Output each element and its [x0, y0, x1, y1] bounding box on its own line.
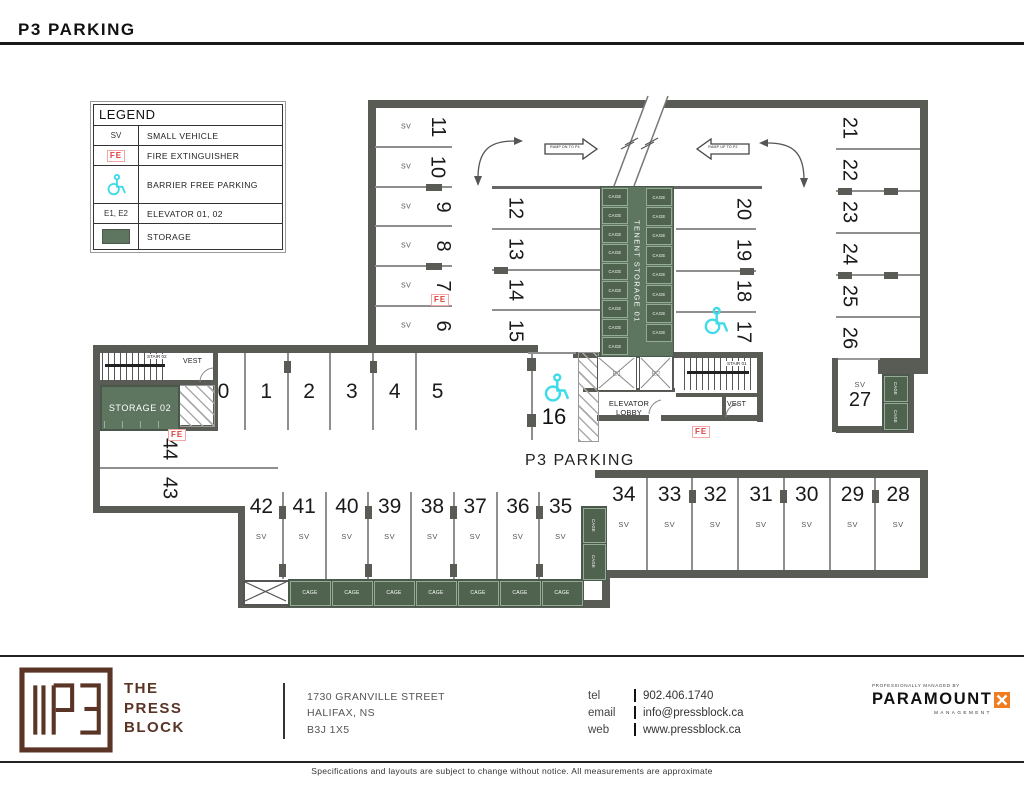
parking-stall: 23 — [836, 192, 920, 234]
storage-cage: CAGE — [290, 581, 331, 606]
wall — [920, 470, 928, 578]
legend-row-elevator: E1, E2 ELEVATOR 01, 02 — [94, 204, 282, 224]
stall-number: 28 — [886, 483, 909, 507]
vestibule-label: VEST — [727, 401, 746, 408]
website-url[interactable]: www.pressblock.ca — [643, 724, 741, 736]
vestibule-label: VEST — [183, 358, 202, 365]
ramp-down-arrow — [545, 139, 597, 159]
sv-label: SV — [664, 520, 675, 529]
sv-label: SV — [256, 532, 267, 541]
stall-number-16: 16 — [534, 404, 574, 430]
storage-cage: CAGE — [602, 244, 628, 262]
address-block: 1730 GRANVILLE STREET HALIFAX, NS B3J 1X… — [307, 689, 445, 738]
stall-number: 14 — [504, 279, 527, 301]
press-block-logo — [18, 667, 114, 753]
stall-column-6-11: SV 11 SV 10 SV 9 SV 8 SV 7 SV 6 — [375, 108, 452, 345]
parking-stall: 4 — [374, 353, 417, 430]
stall-number: 37 — [463, 495, 486, 519]
parking-stall: 43 — [100, 469, 278, 506]
footer-divider — [283, 683, 285, 739]
stall-number: 3 — [346, 380, 358, 404]
cage-row-bottom: CAGECAGECAGECAGECAGECAGECAGE — [288, 579, 584, 607]
legend-title: LEGEND — [94, 105, 282, 126]
stall-number: 21 — [838, 117, 861, 139]
sv-symbol: SV — [94, 126, 139, 145]
sv-label: SV — [401, 243, 411, 250]
parking-stall: 2 — [289, 353, 332, 430]
sv-label: SV — [401, 123, 411, 130]
sv-label: SV — [401, 163, 411, 170]
stall-number: 11 — [426, 117, 449, 138]
parking-stall: 25 — [836, 276, 920, 318]
cage-pair-right: CAGECAGE — [882, 374, 909, 431]
parking-stall: 15 — [492, 311, 600, 350]
stall-number: 35 — [549, 495, 572, 519]
parking-stall: 5 — [417, 353, 458, 430]
contact-row-web: web www.pressblock.ca — [588, 721, 744, 738]
fe-symbol-cell: FE — [94, 146, 139, 165]
stall-number: 8 — [431, 241, 454, 252]
stall-pair-43-44: 44 43 — [100, 430, 278, 506]
parking-stall: 24 — [836, 234, 920, 276]
storage-cage: CAGE — [583, 544, 606, 580]
storage-cage: CAGE — [646, 246, 672, 264]
contact-separator — [634, 723, 636, 736]
stall-column-12-15: 12 13 14 15 — [492, 189, 600, 350]
tenant-storage-label: TENENT STORAGE 01 — [629, 187, 645, 356]
storage-cage: CAGE — [602, 225, 628, 243]
sv-label: SV — [299, 532, 310, 541]
sv-label: SV — [847, 520, 858, 529]
stall-number: 36 — [506, 495, 529, 519]
stall-27: SV 27 — [838, 362, 882, 428]
parking-stall: SV 11 — [375, 108, 452, 148]
parking-stall: 38 SV — [412, 492, 455, 579]
wall — [602, 570, 928, 578]
parking-stall: 0 — [203, 353, 246, 430]
parking-stall: 19 — [676, 230, 756, 271]
stall-number: 39 — [378, 495, 401, 519]
storage-cage: CAGE — [602, 300, 628, 318]
elevator-shaft-e1: E1 — [597, 356, 637, 391]
storage-cage: CAGE — [646, 266, 672, 284]
brand-wordmark: THE PRESS BLOCK — [124, 679, 185, 738]
wall-core-partition — [676, 393, 763, 397]
stair-01-label: STAIR 01 — [726, 361, 748, 366]
parking-stall: SV 6 — [375, 307, 452, 345]
fire-extinguisher-marker: FE — [168, 429, 186, 441]
management-text: MANAGEMENT — [872, 710, 992, 715]
stall-number: 18 — [731, 280, 754, 302]
ramp-up-arrow — [697, 139, 749, 159]
sv-label: SV — [427, 532, 438, 541]
contact-block: tel 902.406.1740 email info@pressblock.c… — [588, 687, 744, 738]
stall-row-0-5: 0 1 2 3 4 5 — [203, 353, 458, 430]
parking-stall: 35 SV — [540, 492, 581, 579]
sv-label: SV — [555, 532, 566, 541]
ramp-band — [614, 96, 668, 186]
tenant-storage-block: CAGECAGECAGECAGECAGECAGECAGECAGECAGE TEN… — [600, 186, 674, 357]
wall-core-bottom — [661, 415, 763, 421]
storage-cage: CAGE — [646, 207, 672, 225]
wall — [93, 506, 245, 513]
paramount-x-icon — [994, 692, 1010, 708]
parking-stall: 41 SV — [284, 492, 327, 579]
contact-label: email — [588, 707, 634, 719]
stall-number: 43 — [158, 476, 181, 498]
stall-row-28-34: 34 SV 33 SV 32 SV 31 SV 30 SV 29 SV 28 S… — [602, 478, 920, 570]
legend-label: FIRE EXTINGUISHER — [139, 146, 282, 165]
storage-cage: CAGE — [602, 281, 628, 299]
stall-number: 23 — [838, 201, 861, 223]
contact-separator — [634, 689, 636, 702]
sv-label: SV — [710, 520, 721, 529]
parking-stall: 34 SV — [602, 478, 648, 570]
parking-stall: 1 — [246, 353, 289, 430]
paramount-block: PROFESSIONALLY MANAGED BY PARAMOUNT MANA… — [872, 683, 1014, 715]
parking-stall: 28 SV — [876, 478, 920, 570]
stall-bumper — [527, 358, 536, 371]
stall-line — [528, 352, 576, 354]
sv-label: SV — [512, 532, 523, 541]
ramp-up-label: RAMP UP TO P2 — [705, 145, 741, 149]
contact-label: tel — [588, 690, 634, 702]
wheelchair-icon — [540, 369, 572, 407]
sv-label: SV — [401, 323, 411, 330]
wall — [878, 358, 928, 374]
legend-row-barrier-free: BARRIER FREE PARKING — [94, 166, 282, 204]
parking-stall: 36 SV — [498, 492, 541, 579]
parking-stall: 32 SV — [693, 478, 739, 570]
elevator-lobby-label: ELEVATOR LOBBY — [596, 399, 662, 417]
stall-number: 9 — [431, 201, 454, 212]
legend-row-storage: STORAGE — [94, 224, 282, 249]
parking-stall: 31 SV — [739, 478, 785, 570]
legend: LEGEND SV SMALL VEHICLE FE FIRE EXTINGUI… — [93, 104, 283, 250]
wall — [595, 470, 928, 478]
stall-number: 34 — [612, 483, 635, 507]
wall — [368, 100, 928, 108]
parking-stall: 40 SV — [327, 492, 370, 579]
stall-column-21-26: 21 22 23 24 25 26 — [836, 108, 920, 358]
storage-cage: CAGE — [646, 304, 672, 322]
stall-number: 5 — [432, 380, 444, 404]
stall-number: 6 — [431, 320, 454, 331]
disclaimer-text: Specifications and layouts are subject t… — [0, 766, 1024, 776]
parking-stall: 21 — [836, 108, 920, 150]
contact-row-email: email info@pressblock.ca — [588, 704, 744, 721]
header-rule — [0, 42, 1024, 45]
cross-box — [243, 580, 291, 606]
page-title: P3 PARKING — [18, 20, 136, 40]
stall-row-35-42: 42 SV 41 SV 40 SV 39 SV 38 SV 37 SV 36 S… — [241, 492, 581, 579]
storage-cage: CAGE — [884, 376, 908, 403]
ramp-down-label: RAMP DN TO P4 — [547, 145, 583, 149]
wheelchair-symbol-cell — [94, 166, 139, 203]
stall-number: 22 — [838, 159, 861, 181]
circulation-arrow — [768, 143, 804, 180]
legend-row-small-vehicle: SV SMALL VEHICLE — [94, 126, 282, 146]
storage-cage: CAGE — [602, 337, 628, 355]
parking-stall: 29 SV — [831, 478, 877, 570]
storage-cage: CAGE — [602, 319, 628, 337]
wall-core-right — [757, 352, 763, 422]
contact-row-tel: tel 902.406.1740 — [588, 687, 744, 704]
elevator-symbol: E1, E2 — [94, 204, 139, 223]
parking-stall: 12 — [492, 189, 600, 230]
sv-label: SV — [401, 203, 411, 210]
wall-vest-partition — [722, 393, 726, 419]
email-address[interactable]: info@pressblock.ca — [643, 707, 744, 719]
parking-stall: 20 — [676, 189, 756, 230]
cage-pair-mid: CAGECAGE — [581, 506, 607, 581]
legend-label: STORAGE — [139, 224, 282, 249]
storage-cage: CAGE — [583, 508, 606, 544]
parking-stall: 26 — [836, 318, 920, 358]
stall-number: 15 — [504, 320, 527, 342]
storage-cage: CAGE — [458, 581, 499, 606]
sv-label: SV — [401, 283, 411, 290]
sv-label: SV — [618, 520, 629, 529]
stall-number: 10 — [425, 156, 448, 178]
contact-label: web — [588, 724, 634, 736]
stall-number: 26 — [838, 327, 861, 349]
storage-cage: CAGE — [416, 581, 457, 606]
storage-cage: CAGE — [500, 581, 541, 606]
stall-number: 4 — [389, 380, 401, 404]
fire-extinguisher-icon: FE — [107, 150, 125, 162]
parking-stall: 44 — [100, 430, 278, 469]
storage-cage: CAGE — [374, 581, 415, 606]
stall-number: 2 — [303, 380, 315, 404]
stall-number: 24 — [838, 243, 861, 265]
parking-stall: SV 8 — [375, 227, 452, 267]
parking-stall: 33 SV — [648, 478, 694, 570]
sv-label: SV — [384, 532, 395, 541]
storage-swatch — [102, 229, 130, 244]
parking-stall: 39 SV — [369, 492, 412, 579]
cage-stack-left: CAGECAGECAGECAGECAGECAGECAGECAGECAGE — [601, 187, 629, 356]
wall — [920, 100, 928, 362]
parking-stall: 3 — [331, 353, 374, 430]
stall-number: 7 — [431, 281, 454, 292]
stall-number: 1 — [260, 380, 272, 404]
phone-number: 902.406.1740 — [643, 690, 713, 702]
storage-swatch-cell — [94, 224, 139, 249]
storage-cage: CAGE — [602, 188, 628, 206]
legend-row-fire-extinguisher: FE FIRE EXTINGUISHER — [94, 146, 282, 166]
sv-label: SV — [801, 520, 812, 529]
stall-line — [838, 358, 880, 360]
sv-label: SV — [893, 520, 904, 529]
circulation-arrow — [478, 141, 514, 178]
sv-label: SV — [341, 532, 352, 541]
hatch-area — [578, 352, 599, 442]
stall-number: 29 — [841, 483, 864, 507]
stall-number: 25 — [838, 285, 861, 307]
storage-cage: CAGE — [646, 227, 672, 245]
parking-stall: 37 SV — [455, 492, 498, 579]
stall-number: 30 — [795, 483, 818, 507]
parking-stall: 30 SV — [785, 478, 831, 570]
cage-stack-right: CAGECAGECAGECAGECAGECAGECAGECAGE — [645, 187, 673, 356]
area-label: P3 PARKING — [525, 452, 635, 470]
floor-plan-page: P3 PARKING LEGEND SV SMALL VEHICLE FE FI… — [0, 0, 1024, 791]
stall-number: 13 — [504, 238, 527, 260]
legend-label: BARRIER FREE PARKING — [139, 166, 282, 203]
paramount-wordmark: PARAMOUNT — [872, 690, 992, 709]
fire-extinguisher-marker: FE — [431, 294, 449, 306]
stall-number: 17 — [731, 321, 754, 343]
storage-02-room: STORAGE 02 — [100, 385, 180, 431]
stall-number: 31 — [749, 483, 772, 507]
stall-number: 41 — [292, 495, 315, 519]
managed-by-text: PROFESSIONALLY MANAGED BY — [872, 683, 1014, 688]
storage-cage: CAGE — [602, 207, 628, 225]
legend-label: SMALL VEHICLE — [139, 126, 282, 145]
stall-number: 12 — [504, 197, 527, 219]
parking-stall: 14 — [492, 271, 600, 312]
elevator-shaft-e2: E2 — [639, 356, 673, 391]
contact-separator — [634, 706, 636, 719]
stall-number: 20 — [731, 198, 754, 220]
stall-number: 40 — [335, 495, 358, 519]
wheelchair-icon — [700, 303, 731, 339]
storage-cage: CAGE — [646, 188, 672, 206]
sv-label: SV — [838, 380, 882, 389]
storage-cage: CAGE — [646, 324, 672, 342]
parking-stall: SV 10 — [375, 148, 452, 188]
legend-label: ELEVATOR 01, 02 — [139, 204, 282, 223]
storage-cage: CAGE — [542, 581, 583, 606]
stall-number: 33 — [658, 483, 681, 507]
storage-cage: CAGE — [602, 263, 628, 281]
stall-number: 0 — [218, 380, 230, 404]
storage-cage: CAGE — [646, 285, 672, 303]
sv-label: SV — [756, 520, 767, 529]
fire-extinguisher-marker: FE — [692, 426, 710, 438]
stall-number: 32 — [704, 483, 727, 507]
footer: THE PRESS BLOCK 1730 GRANVILLE STREET HA… — [0, 655, 1024, 763]
sv-label: SV — [470, 532, 481, 541]
parking-stall: SV 9 — [375, 188, 452, 228]
wheelchair-icon — [104, 172, 128, 198]
stall-number: 27 — [849, 389, 871, 411]
stall-number: 38 — [421, 495, 444, 519]
storage-cage: CAGE — [884, 403, 908, 430]
storage-cage: CAGE — [332, 581, 373, 606]
parking-stall: 22 — [836, 150, 920, 192]
parking-stall: 13 — [492, 230, 600, 271]
stall-number: 19 — [731, 239, 754, 261]
stair-02-label: STAIR 02 — [146, 354, 168, 359]
